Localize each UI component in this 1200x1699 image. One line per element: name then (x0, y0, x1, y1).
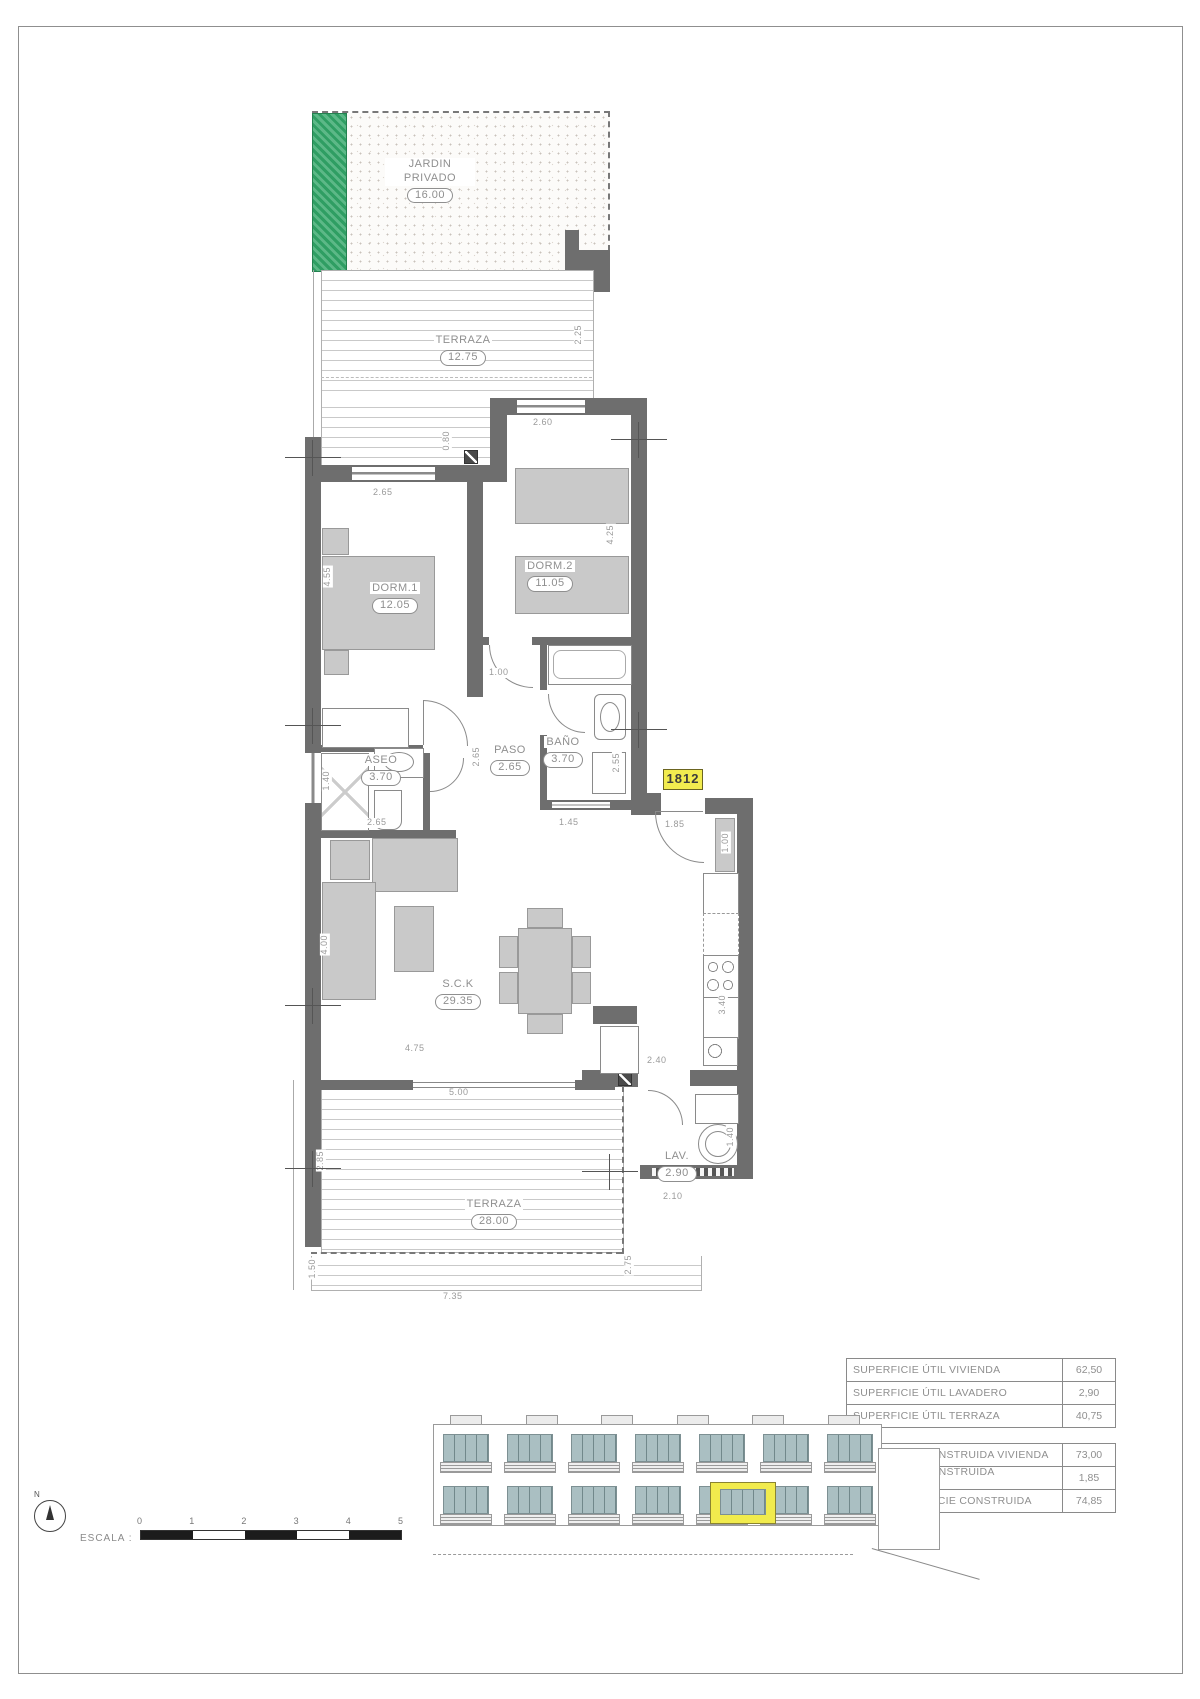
window-dorm1 (352, 467, 435, 480)
door-leaf-entry (655, 811, 703, 812)
door-leaf-dorm1 (423, 700, 424, 745)
furniture-nightstand (324, 650, 349, 675)
room-label-dorm2: DORM.2 11.05 (510, 560, 590, 592)
dim-lav-right: 1.40 (726, 1126, 736, 1148)
section-marker (611, 422, 667, 458)
dim-aseo-left: 1.40 (322, 770, 332, 792)
scale-tick: 2 (241, 1516, 246, 1526)
room-name: TERRAZA (434, 334, 493, 346)
room-label-terraza-top: TERRAZA 12.75 (418, 334, 508, 366)
scale-tick: 5 (398, 1516, 403, 1526)
dim-lav-width: 2.10 (662, 1192, 684, 1202)
elevation-window (443, 1434, 489, 1462)
dim-aseo-width: 2.65 (366, 818, 388, 828)
section-marker (285, 988, 341, 1024)
wall (483, 637, 489, 645)
furniture-dining-table (518, 928, 572, 1014)
scale-tick: 0 (137, 1516, 142, 1526)
drain-icon (464, 450, 478, 464)
elevation-railing (696, 1462, 748, 1473)
room-area-value: 12.75 (440, 350, 486, 366)
kitchen-counter (703, 873, 739, 915)
elevation-window (507, 1434, 553, 1462)
kitchen-stove (703, 955, 739, 999)
elevation-upper-railings (440, 1462, 876, 1473)
elevation-highlighted-unit (710, 1482, 776, 1524)
dim-dorm2-window: 2.60 (532, 418, 554, 428)
scale-segment (245, 1531, 297, 1539)
table-cell-label: SUPERFICIE ÚTIL VIVIENDA (847, 1359, 1062, 1381)
dim-dorm2-depth: 4.25 (606, 524, 616, 546)
garden-hedge-strip (312, 113, 347, 272)
room-label-jardin: JARDIN PRIVADO 16.00 (385, 158, 475, 203)
roof-block (450, 1415, 482, 1425)
wall (593, 1006, 637, 1024)
elevation-railing (632, 1462, 684, 1473)
elevation-window (507, 1486, 553, 1514)
kitchen-sink (703, 1037, 738, 1066)
window-dorm2 (517, 400, 585, 413)
dim-terraza-ext-left: 1.50 (308, 1258, 318, 1280)
wall (313, 1080, 413, 1090)
table-cell-value: 40,75 (1062, 1405, 1115, 1427)
scale-bar (140, 1530, 402, 1540)
wall (737, 798, 753, 1086)
room-area-value: 2.90 (657, 1166, 696, 1182)
wall (467, 482, 483, 697)
scale-label: ESCALA : (80, 1533, 132, 1544)
elevation-railing (824, 1462, 876, 1473)
elevation-window (763, 1434, 809, 1462)
elevation-railing (824, 1514, 876, 1525)
terrace-edge-line (313, 270, 314, 465)
room-area-value: 28.00 (471, 1214, 517, 1230)
table-cell-value: 1,85 (1062, 1467, 1115, 1489)
furniture-nightstand (322, 528, 349, 555)
room-area-value: 2.65 (490, 760, 529, 776)
north-label: N (34, 1490, 40, 1499)
furniture-armchair (330, 840, 370, 880)
elevation-railing (504, 1462, 556, 1473)
room-label-dorm1: DORM.1 12.05 (355, 582, 435, 614)
section-marker (285, 1151, 341, 1187)
room-label-lav: LAV. 2.90 (646, 1150, 708, 1182)
table-row: SUPERFICIE ÚTIL TERRAZA 40,75 (847, 1404, 1115, 1427)
dim-terraza-opening: 5.00 (448, 1088, 470, 1098)
furniture-sofa (372, 838, 458, 892)
elevation-window (571, 1486, 617, 1514)
dim-paso-width: 1.00 (488, 668, 510, 678)
room-name: BAÑO (544, 736, 581, 748)
elevation-lower-railings (440, 1514, 876, 1525)
elevation-railing (632, 1514, 684, 1525)
room-name: DORM.2 (525, 560, 575, 572)
room-area-value: 12.05 (372, 598, 418, 614)
section-marker (285, 708, 341, 744)
furniture-chair (499, 936, 518, 968)
elevation-window (443, 1486, 489, 1514)
dim-dorm1-window: 2.65 (372, 488, 394, 498)
elevation-window (571, 1434, 617, 1462)
elevation-window (699, 1434, 745, 1462)
wall (532, 637, 631, 645)
window-bano (552, 802, 610, 808)
wall (690, 1070, 753, 1086)
room-area-value: 3.70 (543, 752, 582, 768)
table-cell-value: 73,00 (1062, 1444, 1115, 1466)
room-label-sck: S.C.K 29.35 (418, 978, 498, 1010)
roof-block (526, 1415, 558, 1425)
dim-deck-step: 0.80 (442, 430, 452, 452)
furniture-chair (499, 972, 518, 1004)
furniture-sofa (322, 882, 376, 1000)
room-name: JARDIN PRIVADO (385, 158, 475, 186)
table-row: SUPERFICIE ÚTIL LAVADERO 2,90 (847, 1381, 1115, 1404)
room-area-value: 29.35 (435, 994, 481, 1010)
dim-dorm1-depth: 4.55 (323, 566, 333, 588)
elevation-railing (440, 1462, 492, 1473)
scale-tick: 3 (294, 1516, 299, 1526)
dim-bano-right: 2.55 (612, 752, 622, 774)
furniture-bed-single (515, 468, 629, 524)
furniture-coffee-table (394, 906, 434, 972)
room-name: PASO (492, 744, 528, 756)
elevation-window (827, 1486, 873, 1514)
dim-bano-window: 1.45 (558, 818, 580, 828)
room-name: ASEO (363, 754, 400, 766)
scale-segment (349, 1531, 401, 1539)
north-arrow-icon (34, 1500, 66, 1532)
room-name: TERRAZA (465, 1198, 524, 1210)
room-label-terraza-bottom: TERRAZA 28.00 (448, 1198, 540, 1230)
scale-tick: 4 (346, 1516, 351, 1526)
elevation-window (635, 1434, 681, 1462)
section-marker (611, 712, 667, 748)
sliding-door-terrace (413, 1080, 575, 1090)
dim-kitchen-depth: 3.40 (718, 994, 728, 1016)
elevation-window (827, 1434, 873, 1462)
meter-icon (618, 1073, 632, 1086)
furniture-chair (527, 1014, 563, 1034)
furniture-chair (527, 908, 563, 928)
dim-terraza-ext-right: 2.75 (624, 1254, 634, 1276)
scale-tick: 1 (189, 1516, 194, 1526)
room-area-value: 16.00 (407, 188, 453, 204)
roof-block (677, 1415, 709, 1425)
kitchen-counter-dashed (703, 913, 739, 957)
terrace-dashed-line (321, 377, 592, 378)
terrace-storage-box (600, 1026, 639, 1074)
dim-sck-width: 4.75 (404, 1044, 426, 1054)
table-cell-value: 74,85 (1062, 1490, 1115, 1512)
elevation-roof-blocks (450, 1415, 860, 1425)
dim-sck-left: 4.00 (320, 934, 330, 956)
table-cell-value: 2,90 (1062, 1382, 1115, 1404)
scale-tick-labels: 0 1 2 3 4 5 (137, 1516, 403, 1526)
section-marker (582, 1154, 638, 1190)
elevation-railing (504, 1514, 556, 1525)
dim-entry-door: 1.85 (664, 820, 686, 830)
room-label-aseo: ASEO 3.70 (350, 754, 412, 786)
elevation-end-annex (878, 1448, 940, 1550)
room-area-value: 11.05 (527, 576, 572, 592)
elevation-railing (568, 1462, 620, 1473)
roof-block (752, 1415, 784, 1425)
section-marker (285, 440, 341, 476)
areas-table-util: SUPERFICIE ÚTIL VIVIENDA 62,50 SUPERFICI… (846, 1358, 1116, 1428)
wall (321, 830, 456, 838)
window-aseo (305, 753, 321, 803)
elevation-railing (440, 1514, 492, 1525)
elevation-railing (760, 1462, 812, 1473)
room-name: S.C.K (440, 978, 475, 990)
table-row: SUPERFICIE ÚTIL VIVIENDA 62,50 (847, 1359, 1115, 1381)
roof-block (601, 1415, 633, 1425)
table-cell-label: SUPERFICIE ÚTIL LAVADERO (847, 1382, 1062, 1404)
scale-segment (193, 1531, 245, 1539)
room-label-bano: BAÑO 3.70 (530, 736, 596, 768)
wall (540, 645, 547, 690)
room-name: LAV. (663, 1150, 691, 1162)
elevation-lower-windows (443, 1486, 873, 1514)
roof-block (828, 1415, 860, 1425)
room-name: DORM.1 (370, 582, 420, 594)
furniture-chair (572, 972, 591, 1004)
terrace-dashed-bottom (311, 1252, 622, 1254)
laundry-counter (695, 1094, 739, 1124)
north-needle (46, 1505, 54, 1520)
furniture-chair (572, 936, 591, 968)
garden-boundary-dashed-right (608, 111, 610, 251)
elevation-window (635, 1486, 681, 1514)
terrace-extension-deck (311, 1256, 702, 1291)
dim-entry-closet: 1.00 (721, 832, 731, 854)
elevation-upper-windows (443, 1434, 873, 1462)
plan-sheet: JARDIN PRIVADO 16.00 TERRAZA 12.75 2.25 … (0, 0, 1200, 1699)
unit-number-tag: 1812 (663, 769, 703, 790)
fixture-bathtub-inner (553, 650, 626, 679)
dim-kitchen-pass: 2.40 (646, 1056, 668, 1066)
room-area-value: 3.70 (361, 770, 400, 786)
dim-terraza-width: 7.35 (442, 1292, 464, 1302)
dim-terraza-top-right: 2.25 (574, 324, 584, 346)
garden-boundary-dashed-top (312, 111, 610, 113)
table-cell-value: 62,50 (1062, 1359, 1115, 1381)
elevation-window (720, 1489, 766, 1515)
elevation-ground-dashed (433, 1554, 853, 1555)
scale-segment (141, 1531, 193, 1539)
elevation-railing (568, 1514, 620, 1525)
wall (423, 753, 430, 838)
scale-segment (297, 1531, 349, 1539)
